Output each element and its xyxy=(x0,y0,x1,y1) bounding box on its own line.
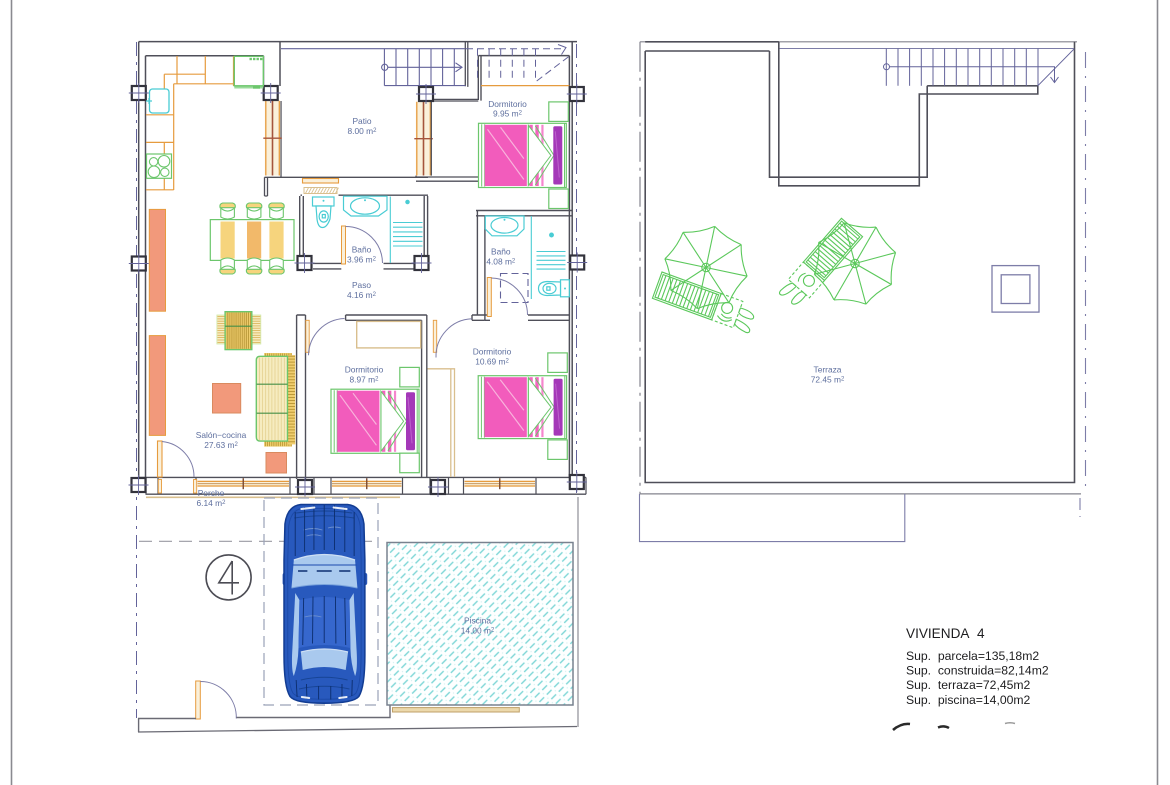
svg-text:6.14 m2: 6.14 m2 xyxy=(197,498,227,508)
svg-text:4.08 m2: 4.08 m2 xyxy=(486,256,516,266)
svg-text:27.63 m2: 27.63 m2 xyxy=(204,440,238,450)
svg-text:Paso: Paso xyxy=(352,280,371,290)
svg-text:Baño: Baño xyxy=(352,245,372,255)
svg-text:Sup. construida=82,14m2: Sup. construida=82,14m2 xyxy=(906,664,1049,678)
svg-text:Sup. parcela=135,18m2: Sup. parcela=135,18m2 xyxy=(906,649,1039,663)
svg-text:8.97 m2: 8.97 m2 xyxy=(350,374,380,384)
svg-text:Salón−cocina: Salón−cocina xyxy=(196,430,247,440)
svg-text:Dormitorio: Dormitorio xyxy=(488,99,527,109)
svg-text:72.45 m2: 72.45 m2 xyxy=(811,374,845,384)
svg-text:Sup. terraza=72,45m2: Sup. terraza=72,45m2 xyxy=(906,678,1031,692)
svg-text:Terraza: Terraza xyxy=(814,365,842,375)
svg-text:Baño: Baño xyxy=(491,247,511,257)
svg-text:Sup. piscina=14,00m2: Sup. piscina=14,00m2 xyxy=(906,693,1031,707)
svg-text:10.69 m2: 10.69 m2 xyxy=(475,356,509,366)
svg-text:Piscina: Piscina xyxy=(464,616,491,626)
svg-text:4.16 m2: 4.16 m2 xyxy=(347,290,377,300)
svg-text:14.00 m2: 14.00 m2 xyxy=(461,625,495,635)
svg-text:Dormitorio: Dormitorio xyxy=(345,365,384,375)
svg-text:9.95 m2: 9.95 m2 xyxy=(493,109,523,119)
svg-text:Patio: Patio xyxy=(352,116,371,126)
svg-text:VIVIENDA 4: VIVIENDA 4 xyxy=(906,626,985,641)
svg-text:3.96 m2: 3.96 m2 xyxy=(347,254,377,264)
svg-text:8.00 m2: 8.00 m2 xyxy=(348,126,378,136)
svg-text:Dormitorio: Dormitorio xyxy=(473,347,512,357)
